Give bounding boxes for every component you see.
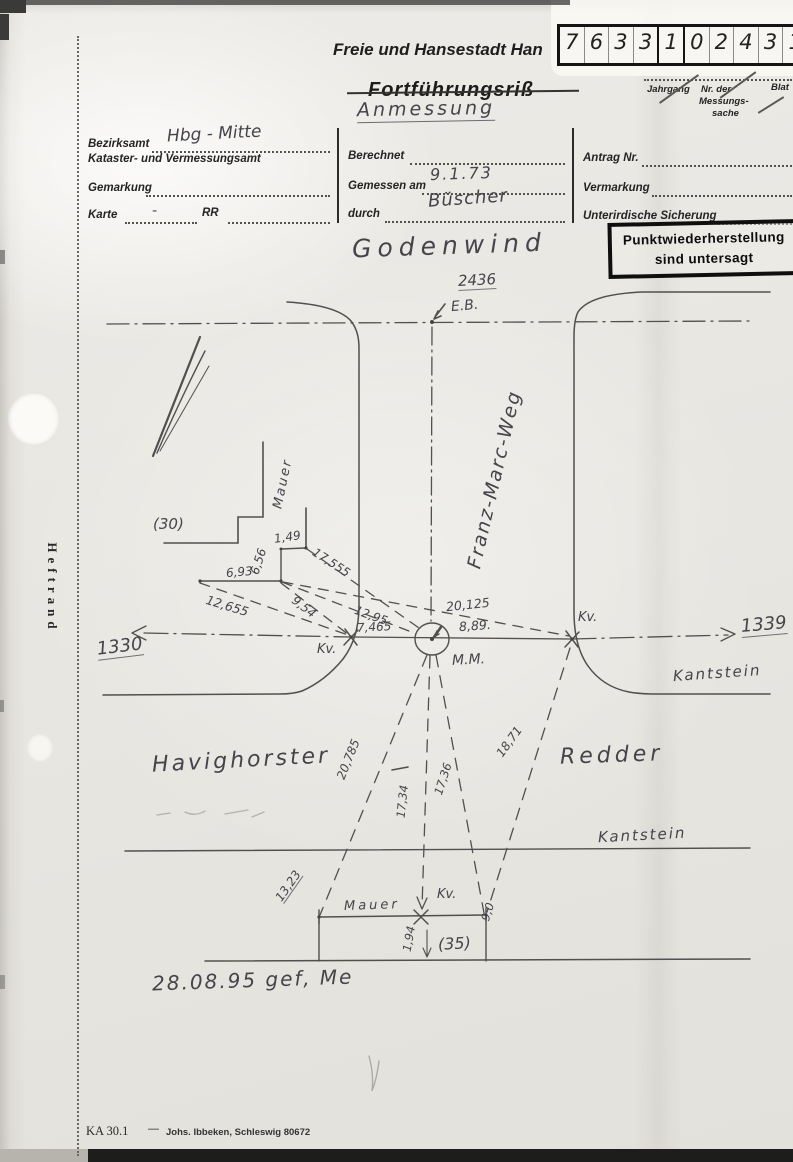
revision-note: 28.08.95 gef, Me <box>152 966 354 993</box>
measurement-693: 6,93 <box>226 565 254 579</box>
wall-end-point <box>304 546 307 549</box>
street-name-redder: Redder <box>560 743 664 769</box>
lower-left-point <box>317 915 320 918</box>
kantstein-label-lower: Kantstein <box>598 826 687 846</box>
traverse-left-line <box>144 633 351 637</box>
mauer-lower-line <box>319 915 486 917</box>
measurement-7465: 7,465 <box>357 620 392 634</box>
traverse-middle-line <box>351 637 572 639</box>
faint-scribble <box>369 1056 379 1091</box>
faint-erased-marks <box>157 810 264 817</box>
parcel-30-label: (30) <box>153 517 184 532</box>
footer-dash: — <box>148 1123 159 1135</box>
dash-mark <box>392 767 408 770</box>
building-35-front-line <box>205 959 750 961</box>
kv-right-point <box>570 637 573 640</box>
corner-point <box>280 548 283 551</box>
corner-point <box>279 579 282 582</box>
mm-center-point <box>430 637 434 641</box>
kv-label-left: Kv. <box>317 643 336 656</box>
scanned-survey-document: Heftrand Freie und Hansestadt Han 7 6 3 … <box>0 0 793 1162</box>
kv-label-right: Kv. <box>578 611 597 624</box>
point-number-1339: 1339 <box>740 614 787 638</box>
ray-1734 <box>422 656 430 908</box>
franz-marc-weg-axis-line <box>431 327 432 621</box>
ray-1871 <box>487 648 570 912</box>
street-name-godenwind: Godenwind <box>352 230 548 262</box>
printer-imprint: Johs. Ibbeken, Schleswig 80672 <box>166 1127 310 1138</box>
kv-cross-lower <box>414 910 428 924</box>
parcel-number-2436: 2436 <box>458 272 497 291</box>
form-code: KA 30.1 <box>86 1124 128 1139</box>
pencil-stroke <box>153 337 200 456</box>
eb-point <box>430 320 434 324</box>
kantstein-lower-line <box>125 848 750 851</box>
eb-label: E.B. <box>450 298 478 314</box>
measurement-149: 1,49 <box>273 529 301 545</box>
measurement-889: 8,89. <box>459 619 492 634</box>
traverse-right-line <box>572 635 728 639</box>
parcel-35-label: (35) <box>438 935 472 953</box>
kv-label-lower: Kv. <box>437 888 456 901</box>
godenwind-axis-line <box>107 321 750 324</box>
survey-sketch-canvas <box>0 0 793 1162</box>
pencil-stroke <box>157 351 205 453</box>
kv-left-point <box>349 635 352 638</box>
corner-point <box>198 579 201 582</box>
offset-194-arrow <box>423 930 431 957</box>
eb-arrow <box>434 304 445 319</box>
mm-label: M.M. <box>452 652 486 668</box>
mauer-label-lower: Mauer <box>344 898 400 913</box>
